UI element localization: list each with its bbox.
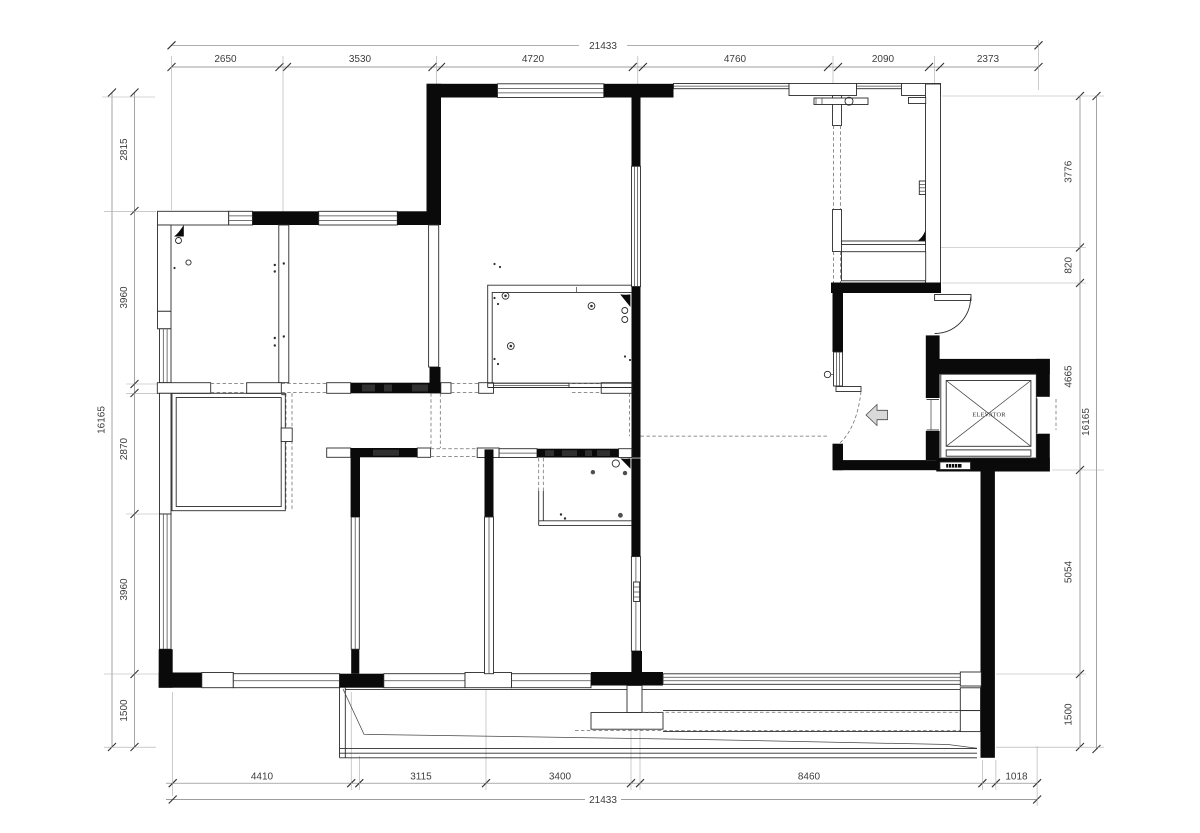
svg-text:820: 820 [1064,257,1075,274]
svg-text:2815: 2815 [119,138,130,161]
svg-text:3776: 3776 [1064,160,1075,183]
svg-text:3960: 3960 [119,286,130,309]
svg-text:1500: 1500 [119,699,130,722]
svg-text:2870: 2870 [119,437,130,460]
svg-text:16165: 16165 [97,406,108,434]
svg-text:3115: 3115 [410,772,432,783]
svg-text:3530: 3530 [349,54,372,65]
svg-text:4720: 4720 [522,54,545,65]
svg-text:1500: 1500 [1064,703,1075,726]
svg-text:8460: 8460 [798,772,821,783]
svg-text:2650: 2650 [214,54,237,65]
svg-text:4665: 4665 [1064,365,1075,388]
svg-text:4410: 4410 [251,772,274,783]
svg-text:16165: 16165 [1081,408,1092,436]
svg-text:21433: 21433 [589,795,617,806]
svg-text:ELEVATOR: ELEVATOR [972,412,1006,419]
svg-text:3400: 3400 [549,772,572,783]
svg-text:21433: 21433 [589,41,617,52]
svg-text:3960: 3960 [119,578,130,601]
svg-text:4760: 4760 [724,54,747,65]
svg-text:2373: 2373 [977,54,1000,65]
svg-text:2090: 2090 [872,54,895,65]
svg-text:5054: 5054 [1064,560,1075,583]
svg-text:1018: 1018 [1005,772,1028,783]
